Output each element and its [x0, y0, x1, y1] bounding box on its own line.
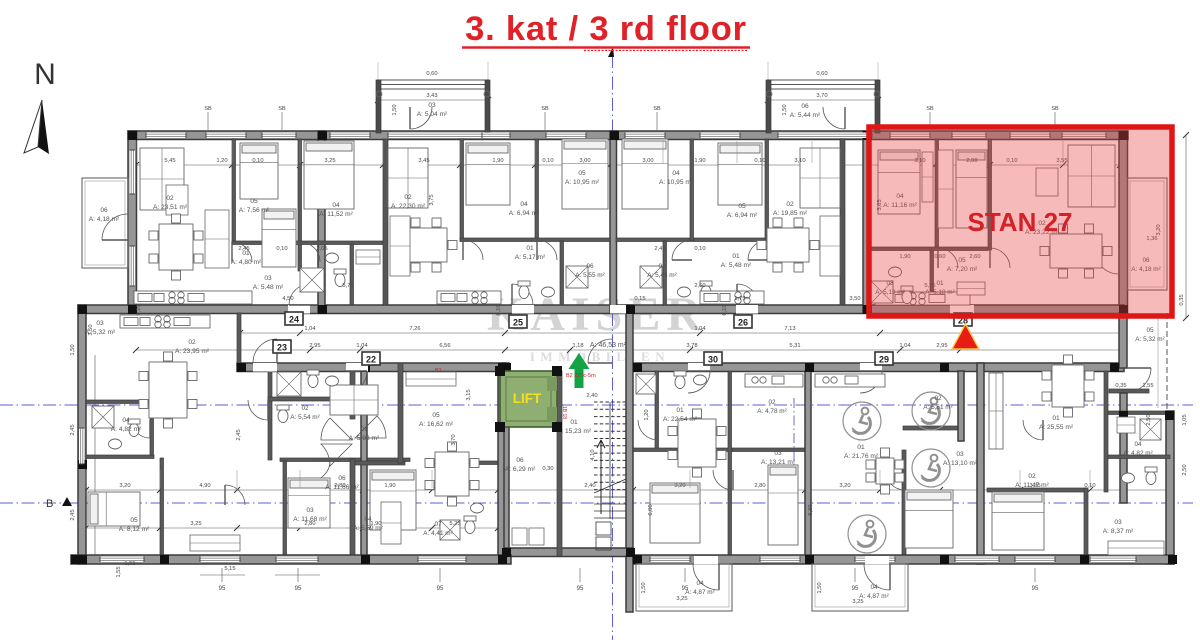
svg-text:25: 25	[513, 318, 523, 328]
svg-text:04: 04	[520, 201, 528, 208]
svg-text:04: 04	[332, 202, 340, 209]
svg-text:0,60: 0,60	[816, 71, 827, 77]
svg-text:3,78: 3,78	[686, 343, 697, 349]
svg-text:B2: B2	[435, 368, 442, 374]
svg-text:2,95: 2,95	[309, 343, 320, 349]
svg-text:3,70: 3,70	[451, 434, 457, 445]
svg-text:01: 01	[857, 444, 865, 451]
svg-text:03: 03	[658, 263, 666, 270]
svg-text:STAN 27: STAN 27	[968, 207, 1073, 237]
svg-text:A: 5,54 m²: A: 5,54 m²	[290, 414, 319, 421]
svg-text:05: 05	[1146, 327, 1154, 334]
svg-text:A: 23,51 m²: A: 23,51 m²	[153, 204, 188, 211]
svg-text:02: 02	[786, 201, 794, 208]
svg-text:B2 227c-5m: B2 227c-5m	[566, 373, 596, 379]
svg-text:04: 04	[672, 170, 680, 177]
svg-text:SB: SB	[278, 106, 286, 112]
svg-text:01: 01	[360, 426, 368, 433]
svg-text:95: 95	[682, 586, 689, 592]
svg-text:1,90: 1,90	[370, 521, 381, 527]
svg-text:A: 5,32 m²: A: 5,32 m²	[1135, 336, 1164, 343]
svg-text:A: 7,56 m²: A: 7,56 m²	[239, 207, 270, 214]
svg-text:6,10: 6,10	[496, 304, 502, 315]
svg-text:SB: SB	[541, 106, 549, 112]
svg-text:N: N	[34, 58, 56, 91]
svg-text:0,10: 0,10	[542, 158, 553, 164]
svg-text:1,50: 1,50	[817, 582, 823, 593]
svg-text:04: 04	[870, 584, 878, 591]
svg-text:A: 10,95 m²: A: 10,95 m²	[565, 179, 600, 186]
svg-text:26: 26	[738, 318, 748, 328]
svg-text:1,05: 1,05	[1182, 414, 1188, 425]
svg-text:A: 11,52 m²: A: 11,52 m²	[319, 211, 353, 218]
svg-text:3,20: 3,20	[674, 483, 685, 489]
svg-text:A: 16,62 m²: A: 16,62 m²	[419, 421, 454, 428]
svg-text:3,70: 3,70	[816, 93, 827, 99]
svg-text:A: 5,48 m²: A: 5,48 m²	[253, 284, 284, 291]
svg-text:0,60: 0,60	[426, 71, 437, 77]
svg-text:A: 19,85 m²: A: 19,85 m²	[773, 210, 808, 217]
svg-text:03: 03	[774, 450, 782, 457]
svg-text:30: 30	[708, 355, 718, 365]
svg-text:0,10: 0,10	[754, 158, 765, 164]
svg-text:95: 95	[1032, 586, 1039, 592]
svg-text:1,50: 1,50	[70, 344, 76, 355]
svg-text:A: 5,48 m²: A: 5,48 m²	[721, 262, 752, 269]
svg-text:0,10: 0,10	[694, 246, 705, 252]
svg-text:3,10: 3,10	[794, 158, 805, 164]
svg-text:3,50: 3,50	[88, 324, 94, 335]
svg-text:04: 04	[122, 417, 130, 424]
svg-text:3,25: 3,25	[324, 158, 335, 164]
svg-text:04: 04	[696, 580, 704, 587]
svg-text:1B 18: 1B 18	[561, 406, 567, 419]
svg-text:24: 24	[289, 315, 299, 325]
svg-text:95: 95	[437, 586, 444, 592]
svg-text:SB: SB	[204, 106, 212, 112]
svg-text:A: 8,37 m²: A: 8,37 m²	[1103, 528, 1134, 535]
svg-text:02: 02	[934, 395, 942, 402]
svg-text:0,15: 0,15	[634, 296, 645, 302]
svg-text:7,13: 7,13	[784, 326, 795, 332]
svg-text:03: 03	[428, 102, 436, 109]
svg-text:A: 15,23 m²: A: 15,23 m²	[557, 428, 592, 435]
svg-text:02: 02	[166, 195, 174, 202]
svg-text:6,80: 6,80	[648, 504, 654, 515]
svg-text:SB: SB	[653, 106, 661, 112]
svg-text:1,90: 1,90	[492, 158, 503, 164]
svg-text:05: 05	[738, 203, 746, 210]
svg-text:2,45: 2,45	[236, 429, 242, 440]
svg-text:1,04: 1,04	[694, 326, 706, 332]
svg-text:A: 4,41 m²: A: 4,41 m²	[423, 530, 452, 537]
svg-text:A: 8,12 m²: A: 8,12 m²	[119, 526, 150, 533]
svg-text:A: 5,43 m²: A: 5,43 m²	[647, 272, 676, 279]
svg-text:02: 02	[768, 399, 776, 406]
svg-text:0,30: 0,30	[542, 466, 553, 472]
svg-text:A: 22,30 m²: A: 22,30 m²	[391, 203, 426, 210]
svg-text:1,90: 1,90	[384, 483, 395, 489]
svg-text:1,90: 1,90	[694, 158, 705, 164]
svg-text:3,20: 3,20	[119, 483, 130, 489]
svg-text:95: 95	[295, 586, 302, 592]
svg-text:1,04: 1,04	[356, 343, 368, 349]
svg-text:6,10: 6,10	[722, 304, 728, 315]
svg-text:A: 25,55 m²: A: 25,55 m²	[1039, 424, 1074, 431]
svg-text:2,80: 2,80	[334, 483, 345, 489]
svg-text:5,75: 5,75	[342, 283, 353, 289]
svg-text:A: 13,10 m²: A: 13,10 m²	[943, 460, 978, 467]
svg-text:A: 4,82 m²: A: 4,82 m²	[1123, 450, 1152, 457]
svg-text:1,55: 1,55	[124, 561, 135, 567]
svg-text:0,10: 0,10	[276, 246, 287, 252]
svg-text:95: 95	[577, 586, 584, 592]
svg-text:A: 5,17 m²: A: 5,17 m²	[515, 254, 546, 261]
svg-text:06: 06	[100, 207, 108, 214]
svg-text:A: 4,18 m²: A: 4,18 m²	[89, 216, 120, 223]
svg-text:3. kat / 3 rd floor: 3. kat / 3 rd floor	[465, 10, 747, 48]
svg-text:SB: SB	[1051, 106, 1059, 112]
svg-text:3,43: 3,43	[426, 93, 437, 99]
svg-text:01: 01	[732, 253, 740, 260]
svg-text:03: 03	[956, 451, 964, 458]
svg-text:2,40: 2,40	[586, 393, 597, 399]
svg-text:1,55: 1,55	[1142, 383, 1153, 389]
svg-text:23: 23	[277, 343, 287, 353]
svg-text:5,45: 5,45	[164, 158, 175, 164]
svg-text:95: 95	[852, 586, 859, 592]
svg-text:A: 5,55 m²: A: 5,55 m²	[575, 272, 604, 279]
svg-text:07: 07	[434, 521, 442, 528]
svg-text:0,10: 0,10	[252, 158, 263, 164]
svg-text:A: 6,94 m²: A: 6,94 m²	[727, 212, 758, 219]
svg-text:06: 06	[338, 475, 346, 482]
svg-text:02: 02	[1028, 473, 1036, 480]
svg-text:SB: SB	[926, 106, 934, 112]
svg-text:6,56: 6,56	[439, 343, 450, 349]
svg-text:1,20: 1,20	[644, 409, 650, 420]
svg-text:02: 02	[188, 339, 196, 346]
svg-text:B: B	[46, 498, 53, 510]
svg-text:3,45: 3,45	[418, 158, 429, 164]
svg-text:3,75: 3,75	[429, 194, 435, 205]
svg-text:01: 01	[526, 245, 534, 252]
svg-text:1,04: 1,04	[899, 343, 911, 349]
svg-text:4,10: 4,10	[590, 449, 596, 460]
svg-text:1,20: 1,20	[216, 158, 227, 164]
svg-text:3,00: 3,00	[579, 158, 590, 164]
svg-text:05: 05	[250, 198, 258, 205]
svg-text:2,50: 2,50	[1146, 414, 1152, 425]
svg-text:2,40: 2,40	[584, 483, 595, 489]
svg-text:03: 03	[264, 275, 272, 282]
svg-text:3,15: 3,15	[466, 389, 472, 400]
svg-text:2,45: 2,45	[238, 246, 249, 252]
svg-text:29: 29	[879, 355, 889, 365]
svg-text:A: 4,87 m²: A: 4,87 m²	[859, 593, 888, 600]
svg-text:1,50: 1,50	[641, 582, 647, 593]
svg-text:A: 13,21 m²: A: 13,21 m²	[761, 459, 796, 466]
svg-text:05: 05	[578, 170, 586, 177]
svg-text:3,00: 3,00	[642, 158, 653, 164]
svg-text:A: 46,53 m²: A: 46,53 m²	[590, 342, 627, 349]
svg-text:4,90: 4,90	[199, 483, 210, 489]
svg-text:5,31: 5,31	[789, 343, 800, 349]
svg-text:2,05: 2,05	[316, 246, 327, 252]
svg-text:1,18: 1,18	[572, 343, 583, 349]
svg-text:03: 03	[306, 507, 314, 514]
svg-text:02: 02	[301, 405, 309, 412]
svg-text:2,45: 2,45	[70, 509, 76, 520]
svg-text:A: 5,04 m²: A: 5,04 m²	[417, 111, 448, 118]
svg-text:6,80: 6,80	[808, 504, 814, 515]
svg-text:3,35: 3,35	[1029, 483, 1040, 489]
svg-text:06: 06	[586, 263, 594, 270]
svg-text:3,25: 3,25	[852, 599, 863, 605]
svg-text:2,45: 2,45	[70, 424, 76, 435]
svg-text:LIFT: LIFT	[513, 391, 542, 406]
svg-text:IMMOBILIEN: IMMOBILIEN	[530, 349, 670, 364]
svg-text:3,25: 3,25	[676, 596, 687, 602]
svg-text:01: 01	[570, 419, 578, 426]
svg-text:A: 4,78 m²: A: 4,78 m²	[757, 408, 786, 415]
svg-text:7,26: 7,26	[409, 326, 420, 332]
svg-text:A: 10,95 m²: A: 10,95 m²	[659, 179, 694, 186]
svg-text:2,50: 2,50	[1182, 464, 1188, 475]
svg-text:03: 03	[1114, 519, 1122, 526]
svg-text:04: 04	[1134, 441, 1142, 448]
svg-text:0,35: 0,35	[1115, 383, 1126, 389]
svg-text:01: 01	[1052, 415, 1060, 422]
svg-text:05: 05	[130, 517, 138, 524]
svg-text:02: 02	[404, 194, 412, 201]
svg-text:6,10: 6,10	[136, 304, 142, 315]
svg-text:95: 95	[219, 586, 226, 592]
svg-text:2,45: 2,45	[654, 246, 665, 252]
svg-text:A: 23,95 m²: A: 23,95 m²	[175, 348, 210, 355]
svg-text:0,35: 0,35	[1179, 294, 1185, 305]
svg-text:1,50: 1,50	[392, 104, 398, 115]
svg-text:3,25: 3,25	[190, 521, 201, 527]
svg-text:2,95: 2,95	[936, 343, 947, 349]
svg-text:A: 21,76 m²: A: 21,76 m²	[844, 453, 879, 460]
svg-text:A: 5,93 m²: A: 5,93 m²	[349, 435, 380, 442]
svg-text:1,50: 1,50	[782, 104, 788, 115]
svg-text:06: 06	[516, 457, 524, 464]
svg-text:2,80: 2,80	[304, 521, 315, 527]
svg-text:A: 4,87 m²: A: 4,87 m²	[685, 589, 714, 596]
svg-text:A: 4,80 m²: A: 4,80 m²	[231, 259, 262, 266]
svg-text:2,60: 2,60	[694, 283, 705, 289]
svg-text:05: 05	[432, 412, 440, 419]
svg-text:A: 5,44 m²: A: 5,44 m²	[790, 112, 821, 119]
svg-text:1,55: 1,55	[116, 566, 122, 577]
svg-text:A: 5,61 m²: A: 5,61 m²	[923, 404, 952, 411]
svg-text:3,50: 3,50	[849, 296, 860, 302]
svg-text:A: 6,94 m²: A: 6,94 m²	[509, 210, 540, 217]
svg-text:3,20: 3,20	[839, 483, 850, 489]
svg-text:01: 01	[676, 407, 684, 414]
svg-text:06: 06	[801, 103, 809, 110]
svg-text:4,50: 4,50	[282, 296, 293, 302]
svg-text:5,25: 5,25	[449, 521, 460, 527]
svg-text:A: 6,29 m²: A: 6,29 m²	[505, 466, 536, 473]
svg-text:22: 22	[366, 355, 376, 365]
svg-text:03: 03	[96, 320, 104, 327]
svg-text:1,75: 1,75	[734, 296, 745, 302]
svg-text:2,80: 2,80	[754, 483, 765, 489]
svg-text:5,15: 5,15	[224, 566, 235, 572]
svg-text:A: 4,82 m²: A: 4,82 m²	[111, 426, 142, 433]
svg-text:1,04: 1,04	[304, 326, 316, 332]
svg-text:A: 22,54 m²: A: 22,54 m²	[663, 416, 698, 423]
